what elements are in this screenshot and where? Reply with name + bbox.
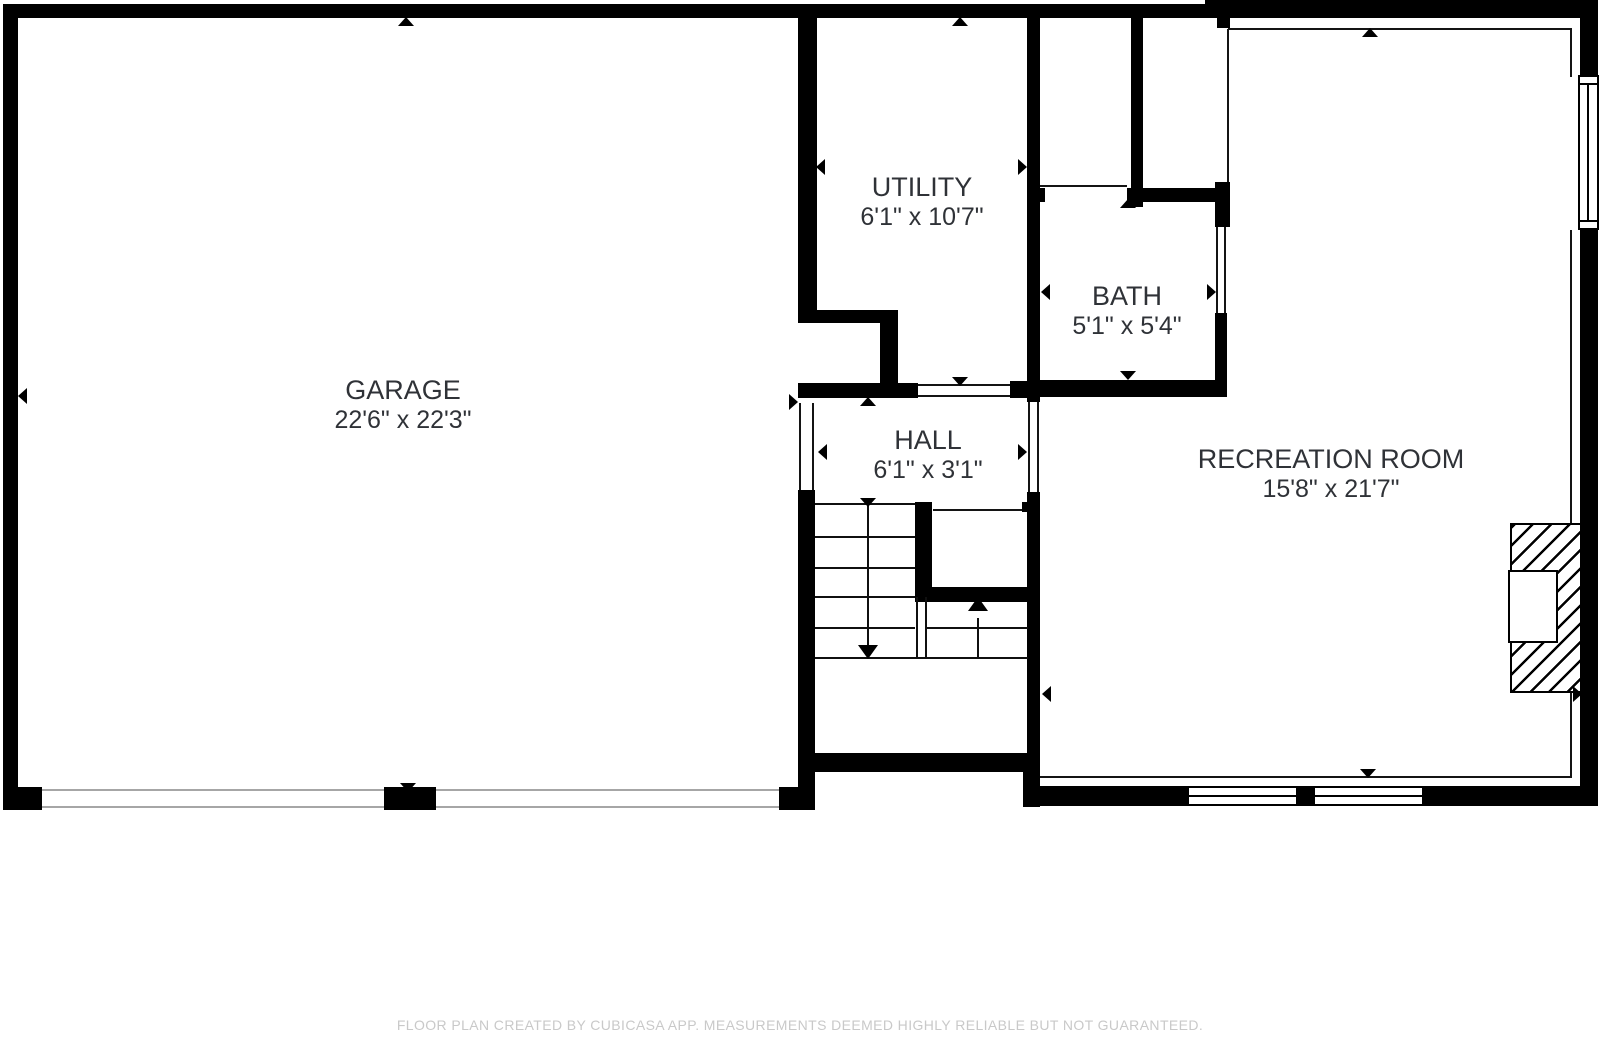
window-cap-line <box>1578 220 1599 222</box>
wall <box>1298 786 1313 806</box>
measure-arrow-left <box>18 388 27 404</box>
wall <box>1027 18 1040 402</box>
measure-arrow-up <box>952 17 968 26</box>
wall <box>1022 502 1040 512</box>
room-dimensions: 5'1" x 5'4" <box>1072 312 1181 341</box>
garage-door-opening <box>42 789 384 791</box>
room-label-garage: GARAGE 22'6" x 22'3" <box>334 375 471 435</box>
wall <box>815 753 1040 772</box>
stair-tread <box>815 567 915 569</box>
measure-arrow-up <box>1120 199 1136 208</box>
wall <box>1580 230 1598 806</box>
wall <box>3 787 42 810</box>
measure-arrow-down <box>1120 371 1136 380</box>
room-dimensions: 22'6" x 22'3" <box>334 406 471 435</box>
measure-arrow-up <box>398 17 414 26</box>
room-name: BATH <box>1072 281 1181 312</box>
room-outline-line <box>1570 29 1572 77</box>
room-outline-line <box>1037 402 1039 492</box>
measure-arrow-right <box>1573 686 1582 702</box>
stair-tread <box>867 503 869 649</box>
room-name: GARAGE <box>334 375 471 406</box>
floor-plan: FLOOR PLAN CREATED BY CUBICASA APP. MEAS… <box>0 0 1600 1049</box>
wall <box>798 383 918 398</box>
room-outline-line <box>918 395 1010 397</box>
room-name: HALL <box>873 425 982 456</box>
room-label-utility: UTILITY 6'1" x 10'7" <box>860 172 983 232</box>
room-dimensions: 6'1" x 10'7" <box>860 203 983 232</box>
room-outline-line <box>933 509 1022 511</box>
window-glass-line <box>1315 795 1422 797</box>
garage-door-opening <box>436 806 779 808</box>
wall <box>1217 14 1230 28</box>
measure-arrow-down <box>858 645 878 659</box>
room-outline-line <box>799 403 801 490</box>
measure-arrow-right <box>1207 284 1216 300</box>
window-glass-line <box>1587 83 1589 222</box>
room-outline-line <box>1216 227 1218 313</box>
stair-tread <box>916 597 918 659</box>
room-outline-line <box>1570 230 1572 523</box>
room-outline-line <box>1028 402 1030 492</box>
measure-arrow-left <box>1042 686 1051 702</box>
wall <box>880 310 898 385</box>
measure-arrow-down <box>860 498 876 507</box>
garage-door-opening <box>436 789 779 791</box>
room-outline-line <box>1224 227 1226 313</box>
wall <box>1027 492 1040 772</box>
wall <box>3 4 18 810</box>
measure-arrow-up <box>1362 28 1378 37</box>
measure-arrow-up <box>968 597 988 611</box>
room-name: RECREATION ROOM <box>1198 444 1465 475</box>
wall <box>1215 182 1230 227</box>
measure-arrow-left <box>1041 284 1050 300</box>
wall <box>798 18 817 310</box>
wall <box>1040 786 1187 806</box>
wall <box>1205 0 1598 18</box>
room-outline-line <box>1227 29 1229 182</box>
stair-tread <box>815 627 915 629</box>
wall <box>1131 15 1143 188</box>
room-outline-line <box>1228 28 1572 30</box>
measure-arrow-down <box>400 783 416 792</box>
stair-tread <box>815 596 915 598</box>
room-outline-line <box>1040 185 1127 187</box>
wall <box>1027 188 1045 202</box>
stair-tread <box>815 536 915 538</box>
wall <box>1424 786 1598 806</box>
fireplace-firebox <box>1508 570 1558 643</box>
stair-tread <box>925 597 927 659</box>
room-dimensions: 6'1" x 3'1" <box>873 456 982 485</box>
room-label-bath: BATH 5'1" x 5'4" <box>1072 281 1181 341</box>
measure-arrow-left <box>818 444 827 460</box>
room-label-hall: HALL 6'1" x 3'1" <box>873 425 982 485</box>
window-cap-line <box>1578 83 1599 85</box>
measure-arrow-right <box>1018 444 1027 460</box>
wall <box>798 490 815 805</box>
room-outline-line <box>1040 776 1572 778</box>
measure-arrow-down <box>1360 769 1376 778</box>
stair-tread <box>977 618 979 658</box>
room-outline-line <box>1570 693 1572 777</box>
measure-arrow-down <box>952 377 968 386</box>
wall <box>915 502 932 590</box>
measure-arrow-up <box>860 397 876 406</box>
wall <box>1580 0 1598 75</box>
measure-arrow-right <box>789 394 798 410</box>
wall <box>1040 380 1227 397</box>
room-name: UTILITY <box>860 172 983 203</box>
room-outline-line <box>812 403 814 490</box>
measure-arrow-right <box>1018 159 1027 175</box>
room-label-recreation_room: RECREATION ROOM 15'8" x 21'7" <box>1198 444 1465 504</box>
wall <box>3 4 1217 18</box>
room-dimensions: 15'8" x 21'7" <box>1198 475 1465 504</box>
measure-arrow-left <box>816 159 825 175</box>
window-glass-line <box>1189 795 1296 797</box>
stair-tread <box>815 657 1028 659</box>
garage-door-opening <box>42 806 384 808</box>
footer-disclaimer: FLOOR PLAN CREATED BY CUBICASA APP. MEAS… <box>0 1017 1600 1033</box>
